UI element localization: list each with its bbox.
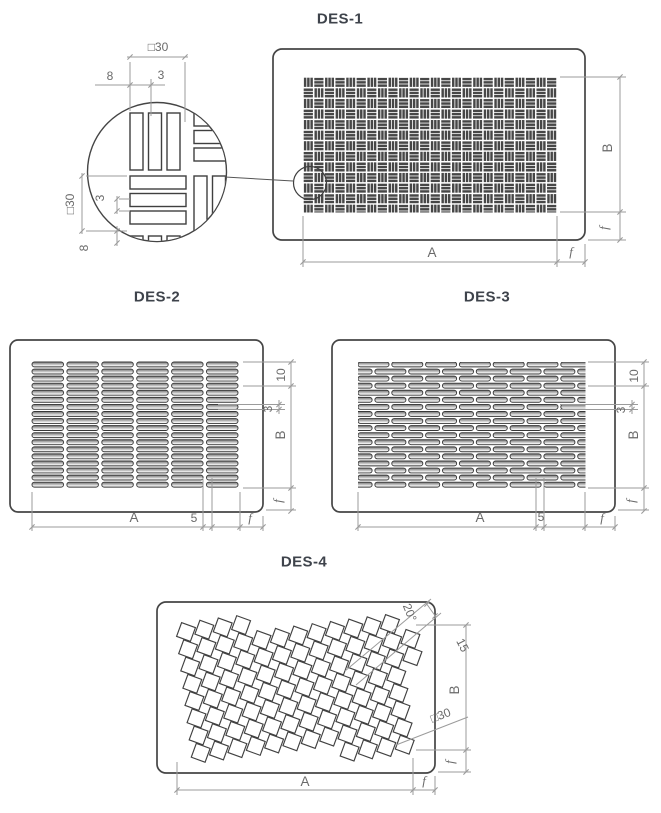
detail-dim-gap-left: 8 (77, 244, 91, 251)
technical-drawing: □30 8 3 □30 3 8 B f A f 10 3 B f A 5 f 1… (0, 0, 661, 813)
des4-dim-f-bottom: f (422, 773, 428, 788)
detail-dim-gap-top: 8 (107, 69, 114, 83)
des4-dim-A: A (300, 774, 309, 789)
detail-dim-slot-top: 3 (158, 68, 165, 82)
des2-dim-A: A (129, 510, 138, 525)
des2-dim-5: 5 (191, 511, 198, 525)
des3-dim-f-right: f (623, 497, 638, 503)
des3-dim-3: 3 (614, 406, 628, 413)
des3-dim-5: 5 (538, 510, 545, 524)
des2-dim-f-right: f (270, 497, 285, 503)
des2-dim-3: 3 (261, 405, 275, 412)
detail-dim-slot-left: 3 (93, 194, 107, 201)
des3-dim-A: A (475, 510, 484, 525)
des3-dim-B: B (626, 430, 641, 439)
des2-dim-10: 10 (274, 368, 288, 382)
des1-dim-A: A (427, 245, 436, 260)
des1-dim-f-right: f (596, 224, 611, 230)
des2-dim-B: B (273, 430, 288, 439)
des1-dim-B: B (600, 143, 615, 152)
des3-dim-10: 10 (627, 369, 641, 383)
detail-dim-size-left: □30 (63, 193, 77, 214)
detail-dim-size-top: □30 (148, 40, 169, 54)
des4-dim-B: B (447, 685, 462, 694)
des4-dim-15: 15 (453, 636, 472, 655)
des1-dim-f-bottom: f (569, 244, 575, 259)
drawing-canvas: DES-1 DES-2 DES-3 DES-4 (0, 0, 661, 813)
des4-dim-f-right: f (442, 758, 457, 764)
